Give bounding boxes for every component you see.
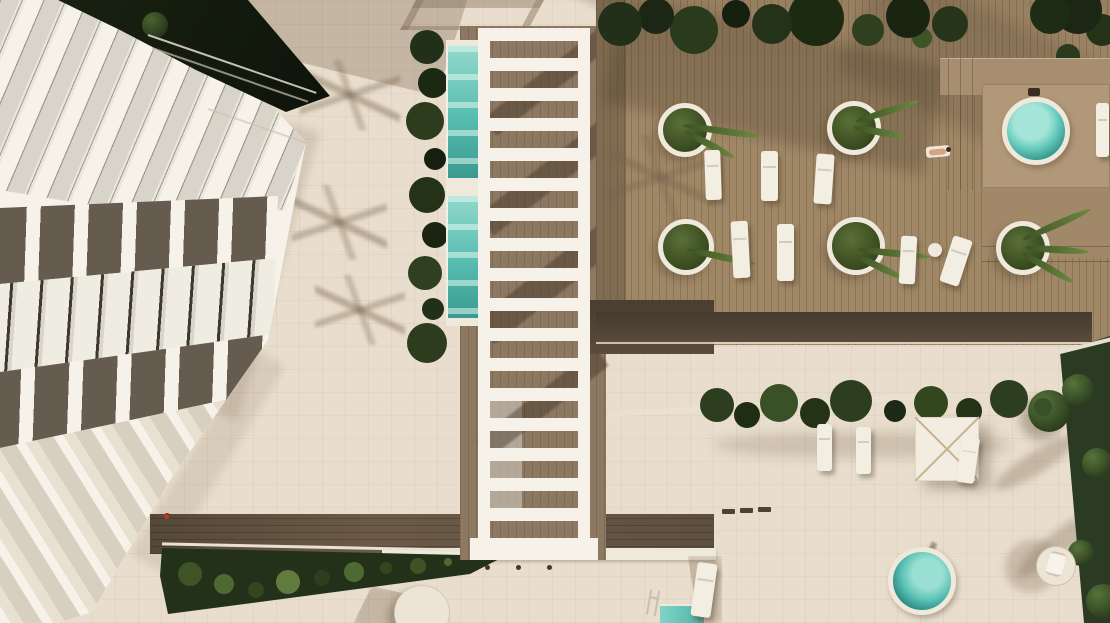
pool-ladder-rail-right [654, 591, 660, 617]
planter-bed-bushes [178, 562, 202, 586]
deck-step-lines-v [948, 58, 984, 190]
round-planter-3 [658, 219, 714, 275]
sunbathing-person [926, 142, 954, 158]
palm-shadow-2 [292, 185, 387, 260]
pergola-slats [488, 28, 580, 560]
sun-lounger-terrace-2 [856, 427, 871, 474]
pool-ladder-rail-left [646, 589, 652, 615]
hot-tub-lower [888, 547, 956, 615]
round-planter-4 [827, 217, 885, 275]
plant-row [700, 388, 734, 422]
round-planter-2 [827, 101, 881, 155]
sun-lounger-5 [777, 224, 794, 281]
pergola [478, 28, 590, 560]
deck-foliage-row [598, 2, 642, 46]
sun-lounger-1 [704, 150, 722, 201]
hedge [410, 30, 444, 64]
person-head [946, 147, 951, 152]
deck-edge-highlight [596, 342, 1092, 344]
hot-tub-access-mark [1028, 88, 1040, 96]
path-light-3 [516, 565, 521, 570]
garden-tree-2 [1062, 374, 1094, 406]
hot-tub-upper [1002, 97, 1070, 165]
sun-lounger-2 [761, 151, 778, 201]
deck-edge-band [596, 312, 1092, 342]
sun-lounger-platform-edge [1096, 103, 1109, 157]
step-marker-1 [722, 509, 735, 514]
sun-lounger-3 [813, 153, 834, 204]
sun-lounger-6 [899, 236, 917, 285]
round-daybed [1036, 546, 1076, 586]
roof-foliage-highlight [142, 12, 168, 38]
round-planter-1 [658, 103, 712, 157]
step-marker-2 [740, 508, 753, 513]
step-marker-3 [758, 507, 771, 512]
aerial-render-canvas [0, 0, 1110, 623]
round-planter-5 [996, 221, 1050, 275]
side-table [928, 243, 942, 257]
daybed-cushion [1045, 550, 1066, 577]
path-light-4 [547, 565, 552, 570]
garden-tree-3 [1082, 448, 1110, 478]
pergola-bottom-beam [470, 538, 598, 560]
sun-lounger-terrace-1 [817, 424, 832, 471]
palm-shadow-3 [315, 275, 405, 345]
balcony-person [164, 513, 170, 519]
sun-lounger-4 [731, 221, 751, 279]
